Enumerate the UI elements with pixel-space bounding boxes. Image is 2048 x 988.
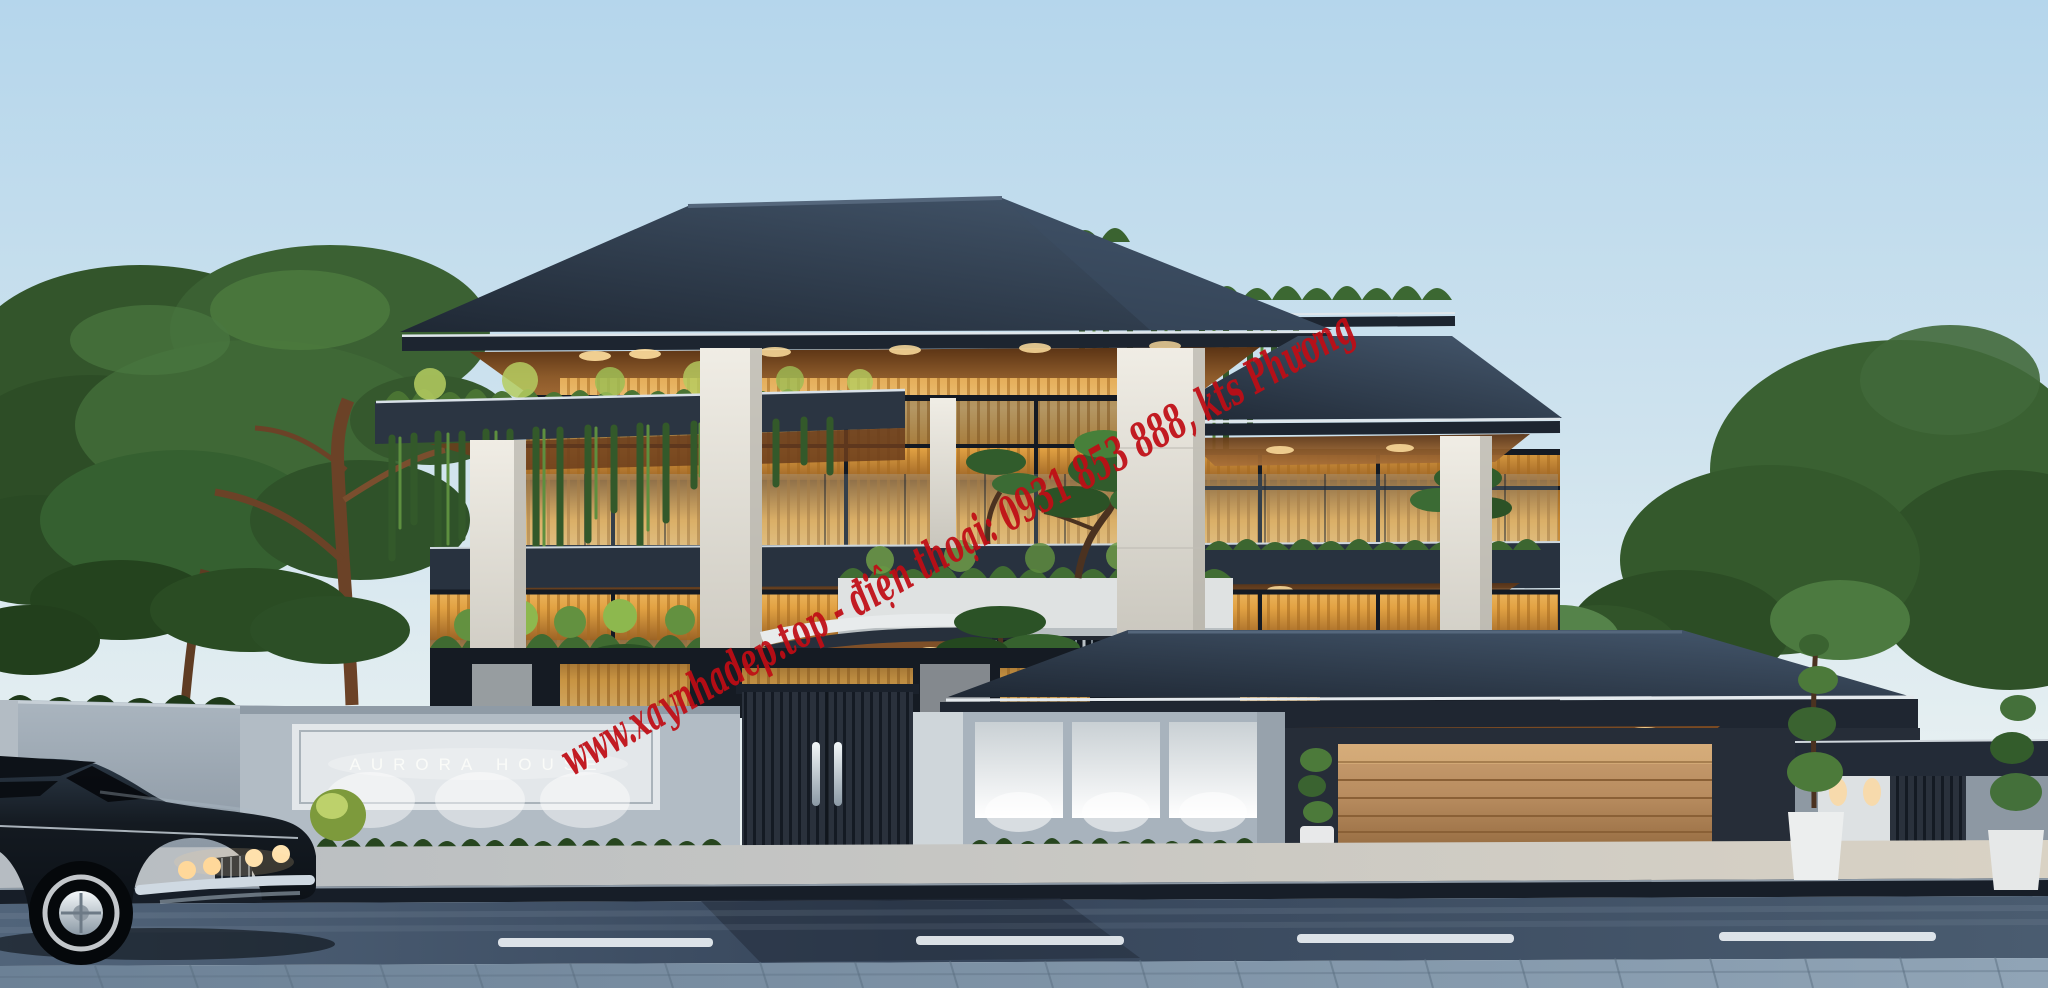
lane-marking	[1719, 932, 1936, 941]
side-gate-door	[1890, 776, 1966, 846]
scene-canvas: AURORA HOUSE	[0, 0, 2048, 988]
rendered-scene: AURORA HOUSE	[0, 0, 2048, 988]
gate-handle	[834, 742, 842, 806]
garage-door	[1338, 744, 1712, 845]
gate-pillar	[913, 712, 963, 848]
lane-marking	[498, 938, 713, 947]
lane-marking	[916, 936, 1124, 945]
car-wheel	[29, 861, 133, 965]
lane-marking	[1297, 934, 1514, 943]
gate-handle	[812, 742, 820, 806]
uplit-panel-wall	[963, 712, 1285, 848]
main-gate	[736, 684, 919, 848]
